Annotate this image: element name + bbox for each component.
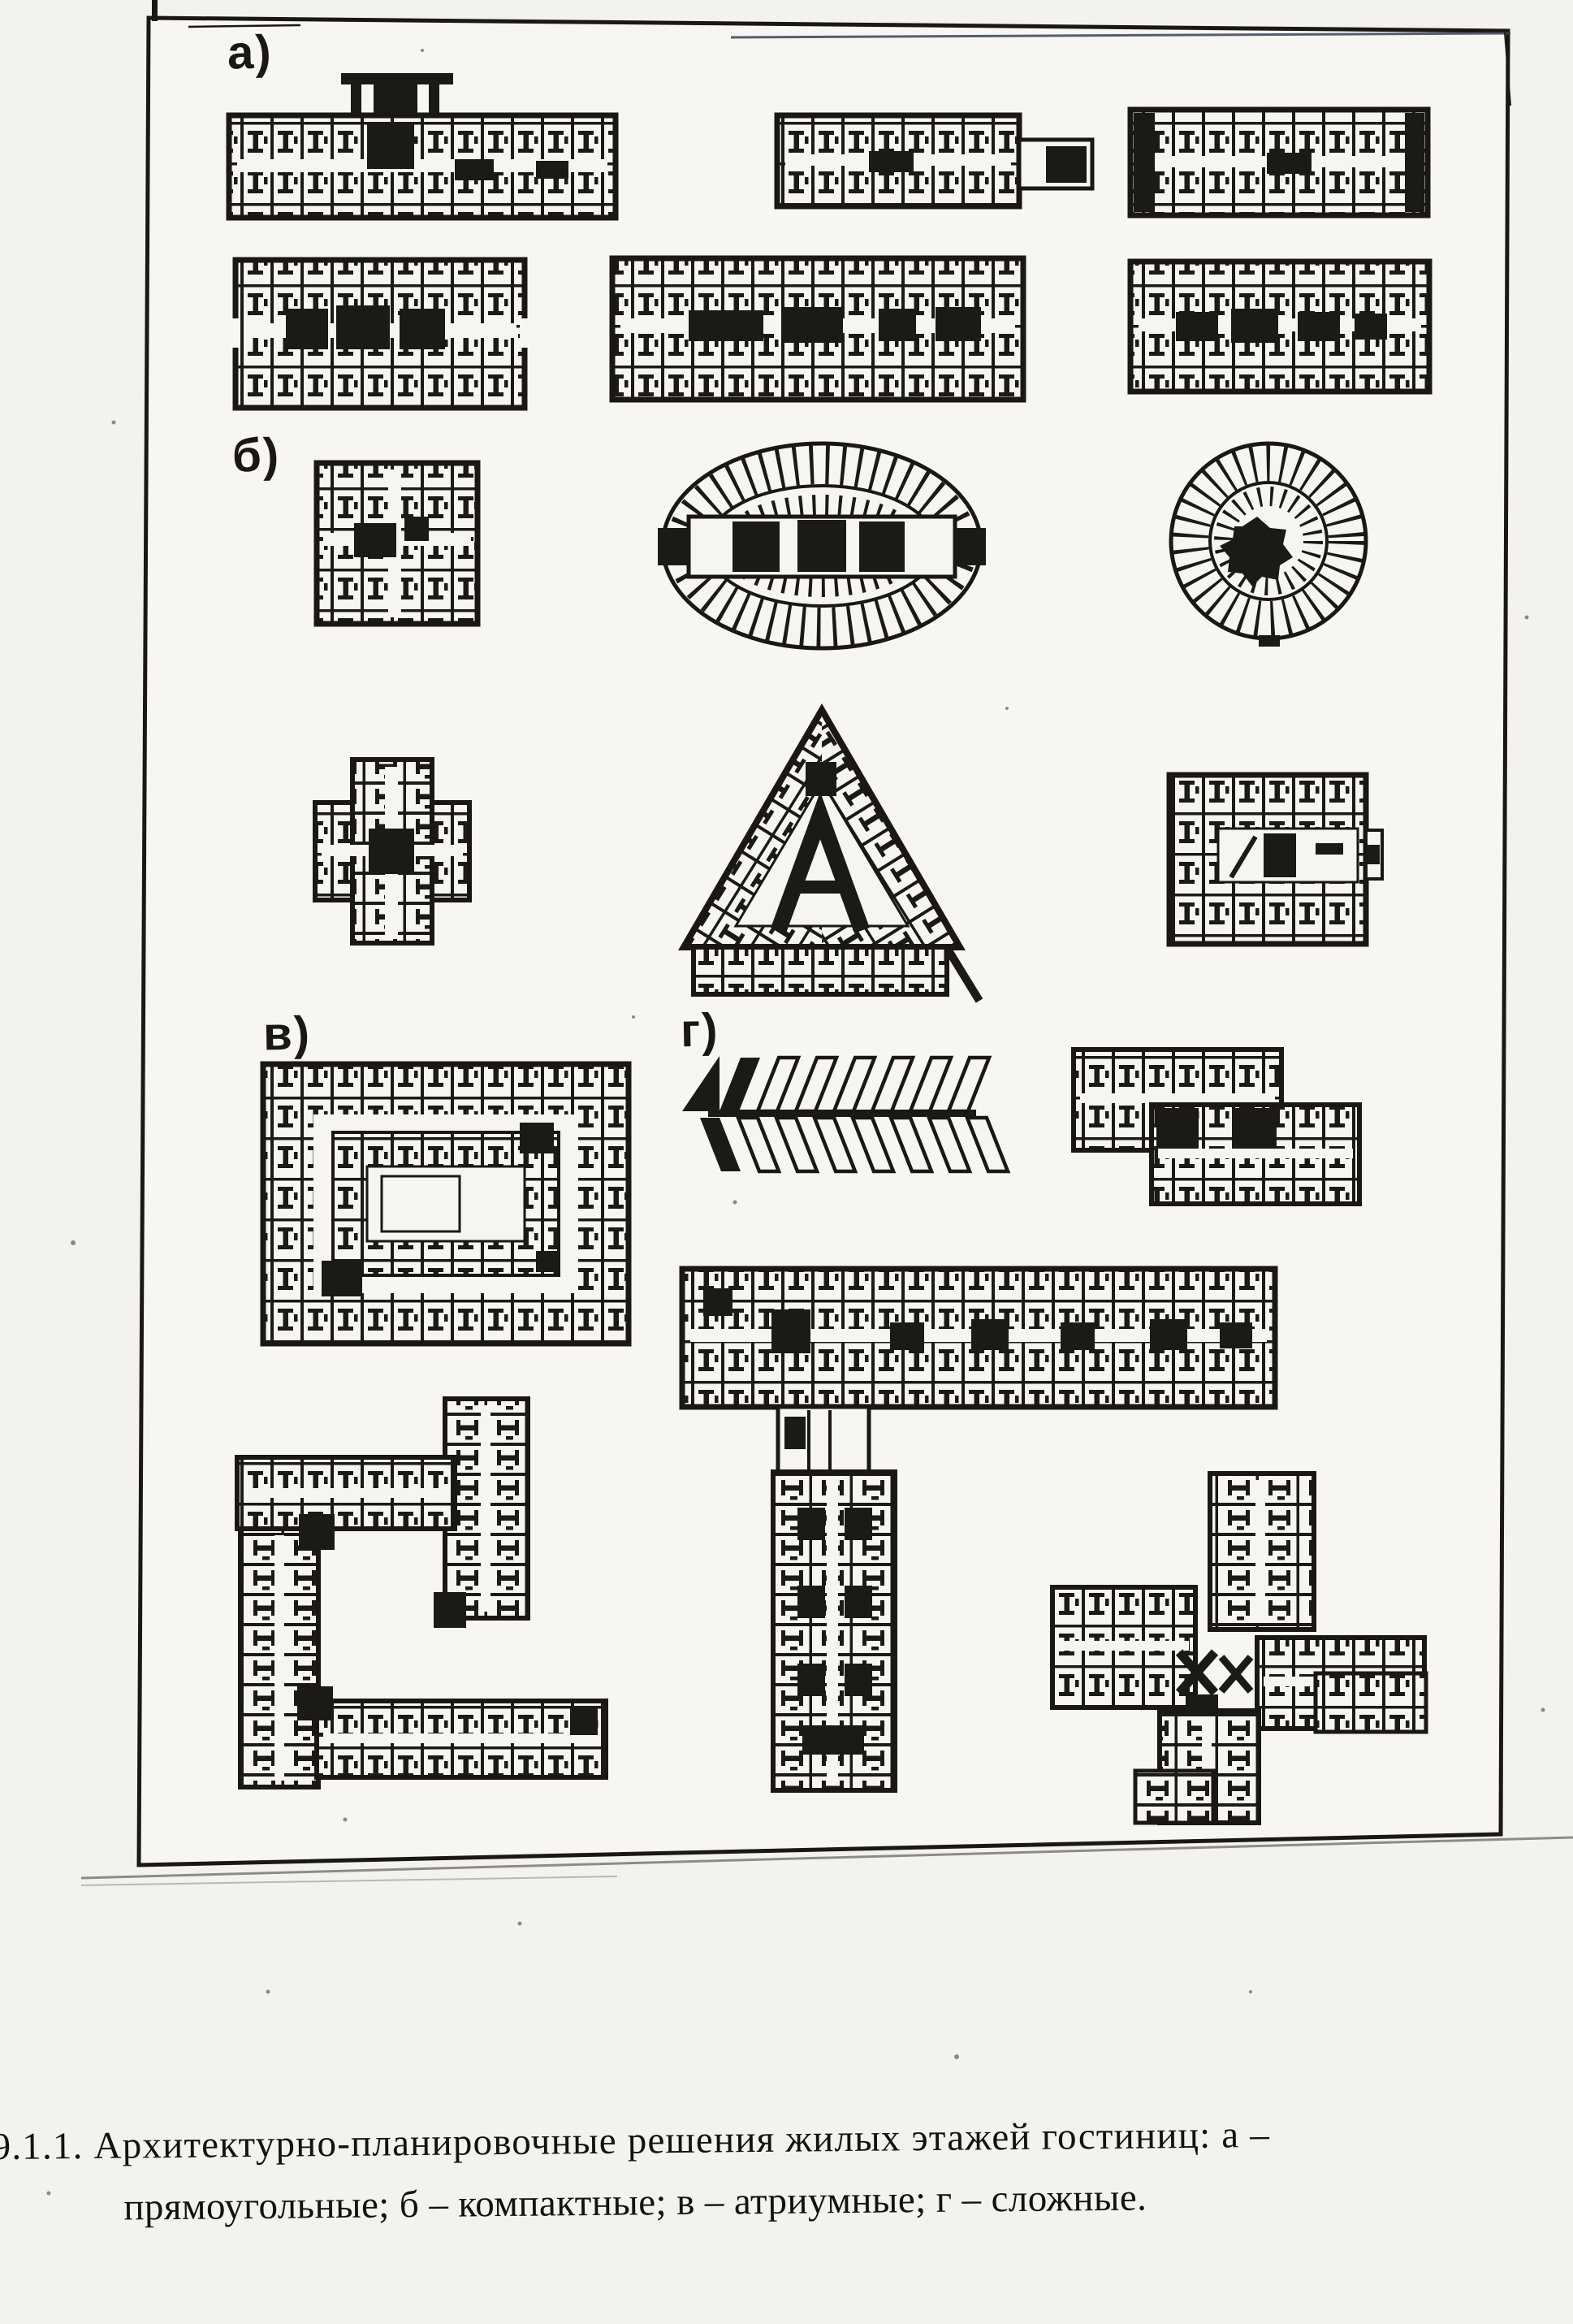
section-label-b: б) — [231, 431, 280, 479]
page: { "page": { "paper_color": "#f3f2ee", "i… — [0, 0, 1573, 2324]
section-label-a: а) — [227, 29, 273, 77]
figure-caption: 9.1.1. Архитектурно-планировочные решени… — [0, 2106, 1573, 2234]
plan-b-square — [317, 463, 478, 624]
plan-a-slab-6 — [1130, 262, 1429, 392]
plan-a-slab-4 — [228, 260, 532, 408]
figure-scan-svg — [0, 0, 1573, 2324]
plan-b-rect — [1169, 775, 1382, 944]
plan-a-slab-3 — [1130, 110, 1428, 215]
section-label-g: г) — [680, 1007, 719, 1055]
plan-a-slab-5 — [612, 258, 1023, 400]
plan-v-atrium — [263, 1064, 629, 1344]
plan-b-oval — [658, 444, 986, 648]
section-label-v: в) — [262, 1010, 311, 1058]
